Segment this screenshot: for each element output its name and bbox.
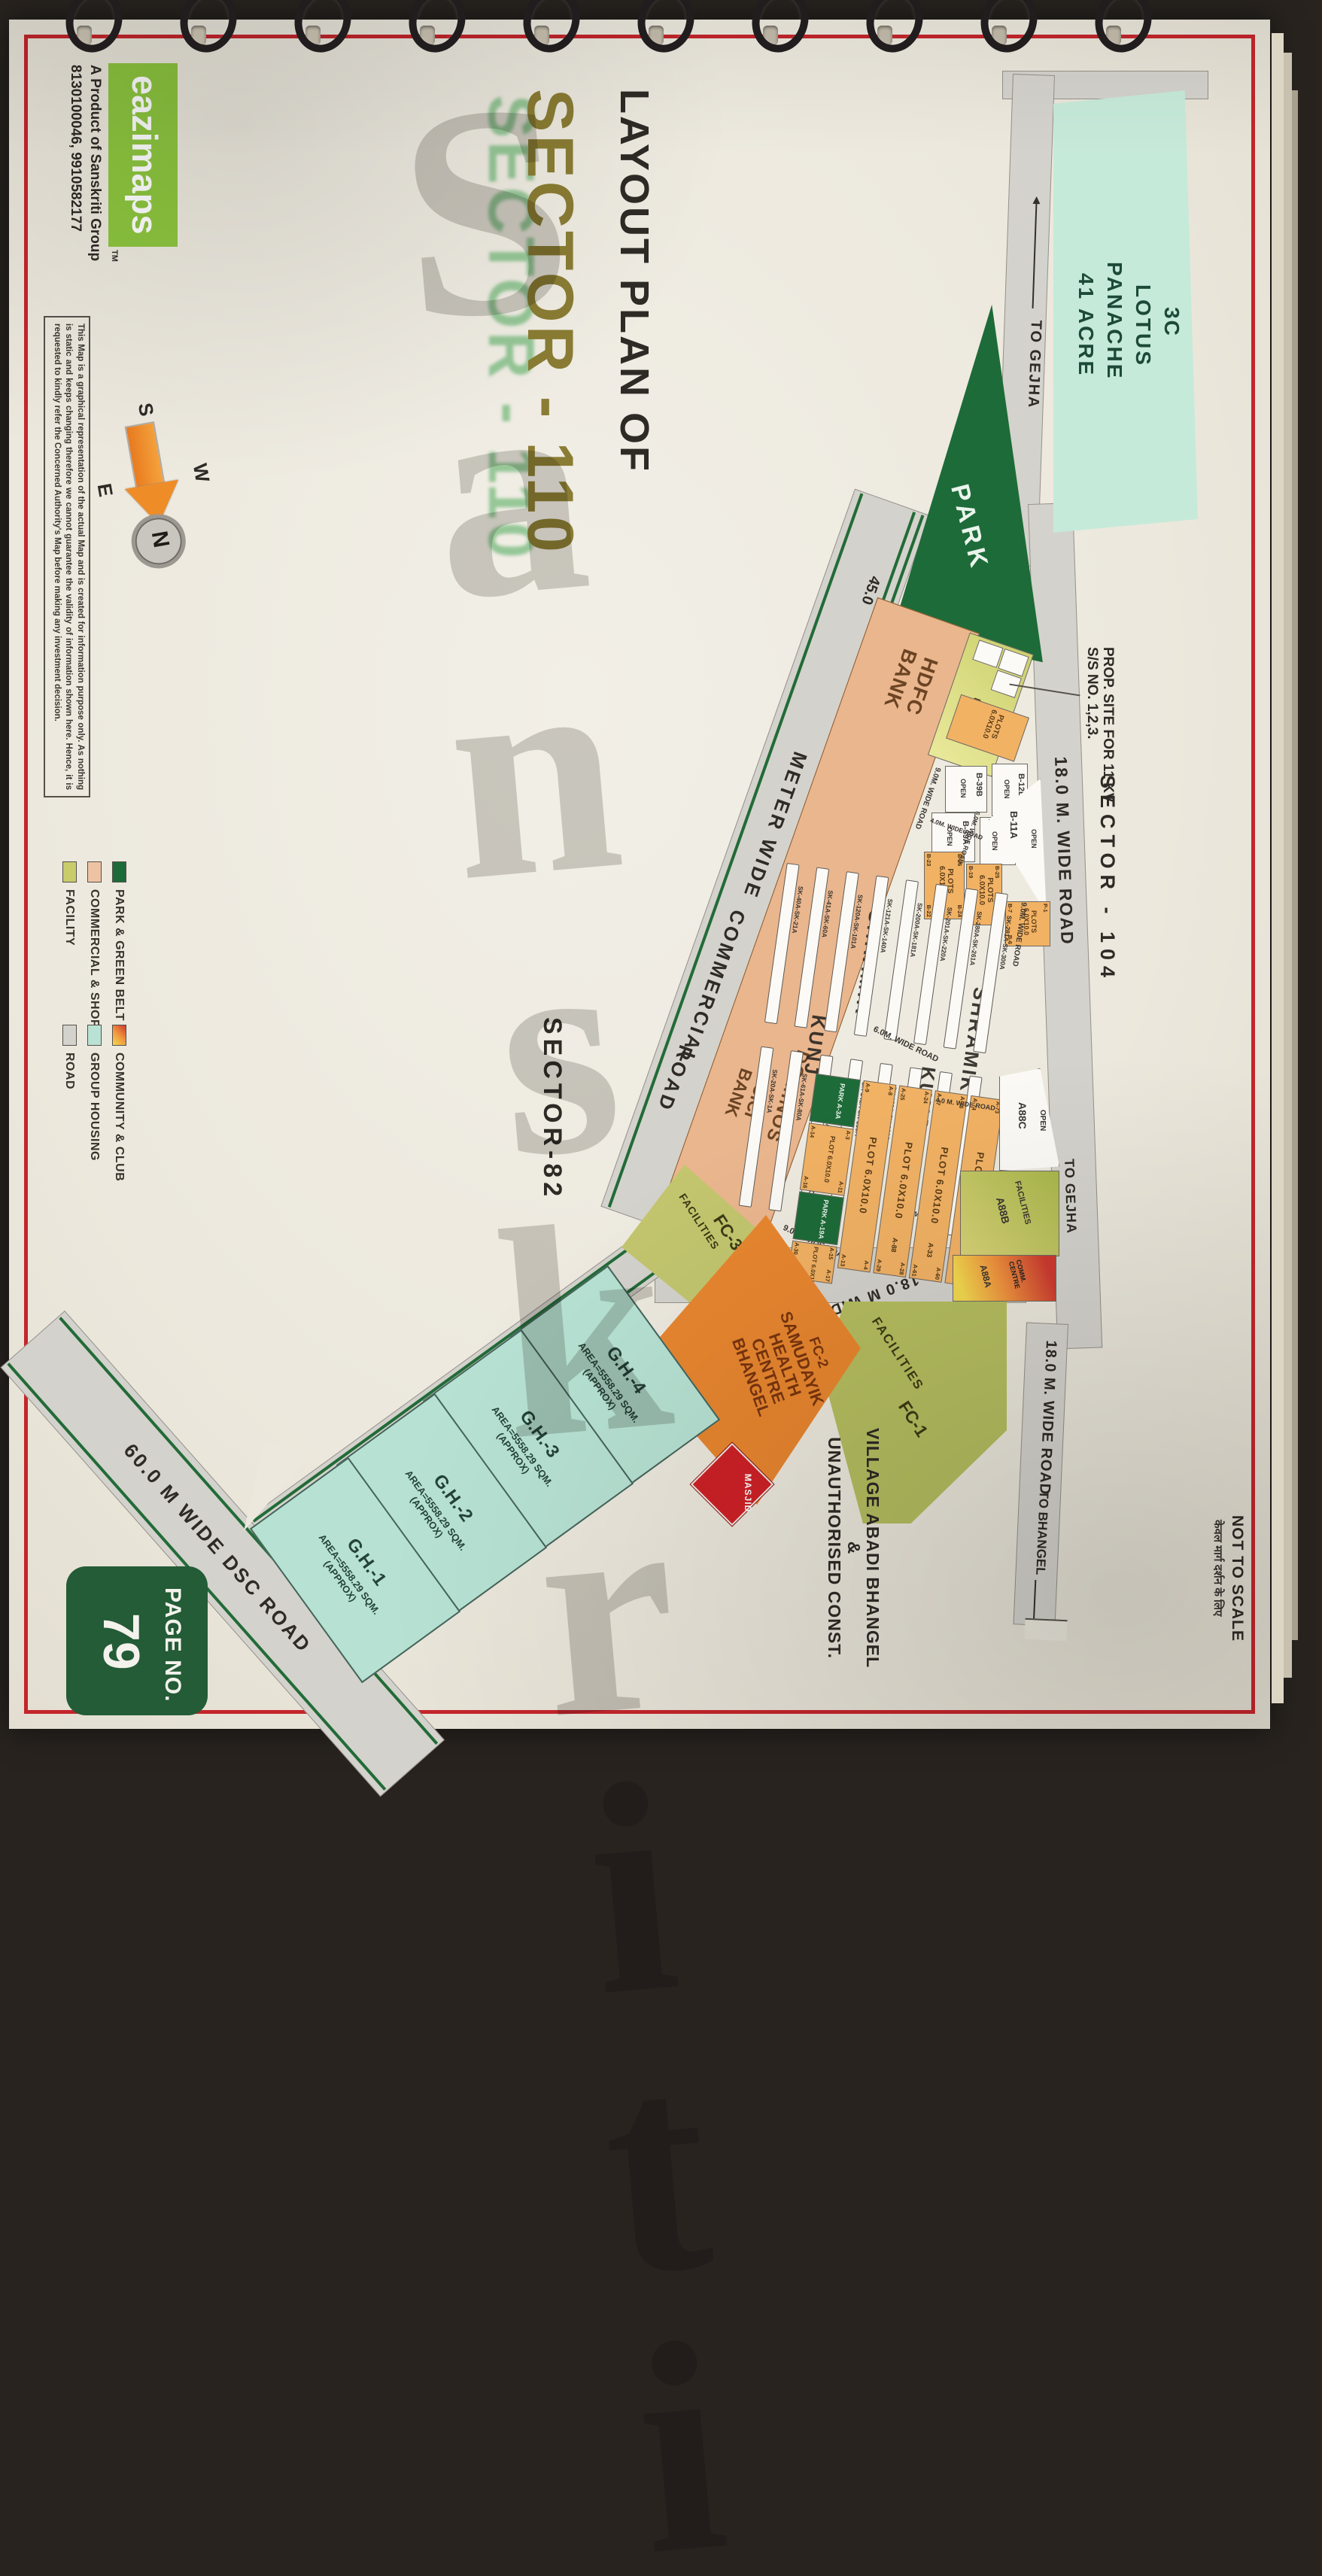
a-plot-small-center: PLOT 6.0X10.0 <box>822 1135 837 1183</box>
corner-label: A-24 <box>922 1091 930 1104</box>
page-no-label: PAGE NO. <box>160 1587 185 1702</box>
spiral-coil-icon <box>173 0 245 59</box>
legend-label: GROUP HOUSING <box>88 1053 102 1161</box>
corner-label: A-15 <box>827 1247 835 1260</box>
plot-b39b: B-39B OPEN <box>945 766 987 813</box>
corner-label: A-9 <box>864 1083 872 1092</box>
hdfc-bank-label: HDFC BANK <box>880 646 942 719</box>
a88a-comm-centre-block: COMM. CENTRE A88A <box>953 1255 1056 1302</box>
scale-note-hindi: केवल मार्ग दर्शन के लिए <box>1211 1520 1224 1616</box>
road-break-icon <box>1024 1618 1067 1641</box>
a-plot-row-center: PLOT 6.0X10.0 <box>928 1147 950 1225</box>
corner-label: A-11 <box>837 1181 845 1194</box>
legend-item: FACILITY <box>62 861 77 1036</box>
legend-label: ROAD <box>63 1053 77 1089</box>
compass-w: W <box>189 462 213 484</box>
spiral-coil-icon <box>631 0 702 59</box>
open-label: OPEN <box>991 831 998 851</box>
corner-label: A-3 <box>844 1130 852 1140</box>
lotus-line-lotus: LOTUS <box>1131 284 1154 367</box>
corner-label: A-16 <box>801 1176 810 1189</box>
park-a3a <box>810 1074 861 1128</box>
page-stack-edge <box>1272 33 1284 1703</box>
a-plot-row-center: PLOT 6.0X10.0 <box>893 1141 915 1220</box>
arrowhead-left-icon <box>1032 196 1040 204</box>
fc1-label: FC-1 <box>895 1398 931 1441</box>
b11a-label: B-11A <box>1008 811 1020 839</box>
fc1-facilities-label: FACILITIES <box>868 1315 925 1393</box>
legend-label: FACILITY <box>63 889 77 946</box>
lotus-line-3c: 3C <box>1159 307 1183 337</box>
legend-item: PARK & GREEN BELT <box>112 861 126 1036</box>
prop-site-l1: PROP. SITE FOR 11 KV <box>1099 647 1115 803</box>
open-label: OPEN <box>959 779 967 798</box>
road-label-to-gejha-top: TO GEJHA <box>1025 320 1044 409</box>
sector-104-label: SECTOR - 104 <box>1096 775 1118 983</box>
legend-column-1: PARK & GREEN BELTCOMMERCIAL & SHOPSFACIL… <box>62 861 126 1036</box>
a-plot-row-center: PLOT 6.0X10.0 <box>857 1136 879 1214</box>
corner-label: A-28 <box>898 1262 906 1275</box>
plots-b3-l1: PLOTS <box>1030 908 1038 935</box>
village-l1: VILLAGE ABADI BHANGEL <box>863 1428 882 1668</box>
corner-label: A-8 <box>886 1086 895 1095</box>
corner-label: A-30 <box>792 1242 801 1255</box>
page-stack-edge <box>1292 90 1298 1640</box>
a88a-label: A88A <box>977 1264 993 1289</box>
spiral-coil-icon <box>745 0 816 59</box>
village-l2: UNAUTHORISED CONST. <box>825 1428 843 1668</box>
open-label: OPEN <box>1030 829 1038 849</box>
brand-phone: 8130100046, 9910582177 <box>67 65 83 232</box>
prop-site-label: PROP. SITE FOR 11 KV S/S NO. 1,2,3. <box>1083 647 1115 803</box>
prop-site-l2: S/S NO. 1,2,3. <box>1083 647 1099 803</box>
compass-n: N <box>147 529 174 549</box>
village-amp: & <box>843 1428 862 1668</box>
corner-label: A-14 <box>809 1125 817 1138</box>
logo-tm: TM <box>110 250 119 262</box>
a-plot-small: A-3A-14A-11A-16PLOT 6.0X10.0 <box>800 1122 854 1195</box>
legend-label: COMMUNITY & CLUB <box>113 1053 126 1181</box>
corner-label: A-13 <box>839 1254 847 1267</box>
a88b-facilities-label: FACILITIES <box>1013 1180 1032 1225</box>
page-no-number: 79 <box>93 1613 149 1670</box>
spiral-coil-icon <box>402 0 473 59</box>
legend-item: COMMUNITY & CLUB <box>112 1025 126 1181</box>
corner-label: A-17 <box>824 1269 832 1282</box>
corner-label: A-33 <box>925 1242 935 1258</box>
b39b-label: B-39B <box>974 773 983 797</box>
a88c-label: A88C <box>1017 1102 1029 1129</box>
disclaimer-box: This Map is a graphical representation o… <box>44 316 90 797</box>
lotus-line-panache: PANACHE <box>1102 262 1126 380</box>
legend-swatch <box>87 1025 102 1046</box>
a88a-comm-label: COMM. CENTRE <box>1007 1259 1029 1290</box>
corner-label: A-61 <box>910 1264 919 1277</box>
legend-swatch <box>62 1025 77 1046</box>
legend-label: PARK & GREEN BELT <box>113 889 126 1021</box>
legend-item: COMMERCIAL & SHOPS <box>87 861 102 1036</box>
corner-label: A-4 <box>862 1260 871 1270</box>
legend-swatch <box>62 861 77 882</box>
spiral-binding <box>0 0 1322 68</box>
legend-item: GROUP HOUSING <box>87 1025 102 1181</box>
map-book-page: 60.0 M WIDE DSC ROAD 3C LOTUS PANACHE 41… <box>9 20 1270 1729</box>
brand-tagline: A Product of Sanskriti Group <box>87 65 102 261</box>
legend-label: COMMERCIAL & SHOPS <box>88 889 102 1036</box>
disclaimer-text: This Map is a graphical representation o… <box>50 324 86 790</box>
plots-a-label: PLOTS 6.0X10.0 <box>980 708 1006 742</box>
a88b-label: A88B <box>994 1196 1012 1226</box>
corner-label: A-25 <box>899 1088 907 1101</box>
a88c-open-label: OPEN <box>1038 1110 1047 1131</box>
housing-strip <box>764 863 800 1024</box>
compass-e: E <box>93 481 117 498</box>
corner-label: A-60 <box>934 1267 942 1280</box>
legend-swatch <box>112 1025 126 1046</box>
spiral-coil-icon <box>859 0 931 59</box>
spiral-coil-icon <box>974 0 1045 59</box>
lotus-panache-block: 3C LOTUS PANACHE 41 ACRE <box>1053 81 1198 533</box>
spiral-coil-icon <box>516 0 588 59</box>
page-number-badge: PAGE NO. 79 <box>66 1566 208 1715</box>
legend-item: ROAD <box>62 1025 77 1181</box>
a88b-facilities-block: FACILITIES A88B <box>960 1171 1059 1256</box>
compass-s: S <box>134 401 157 418</box>
page-stack-edge <box>1284 53 1292 1678</box>
eazimaps-logo: eazimaps <box>108 63 178 247</box>
spiral-coil-icon <box>1088 0 1159 59</box>
corner-label: A-88 <box>889 1238 899 1253</box>
housing-strip <box>739 1046 774 1207</box>
spiral-coil-icon <box>59 0 130 59</box>
not-to-scale-label: NOT TO SCALE <box>1229 1515 1246 1642</box>
corner-label: P-1 <box>1042 904 1049 913</box>
village-abadi-label: VILLAGE ABADI BHANGEL & UNAUTHORISED CON… <box>825 1428 882 1668</box>
corner-label: B-23 <box>925 854 932 866</box>
compass: S W E N <box>73 390 229 583</box>
legend-column-2: COMMUNITY & CLUBGROUP HOUSINGROAD <box>62 1025 126 1181</box>
legend-swatch <box>112 861 126 882</box>
corner-label: B-25 <box>994 866 1001 878</box>
road-label-to-gejha-right: TO GEJHA <box>1061 1159 1078 1234</box>
lotus-line-acre: 41 ACRE <box>1074 273 1097 377</box>
road-label-to-bhangel: TO BHANGEL <box>1032 1490 1050 1575</box>
legend-swatch <box>87 861 102 882</box>
open-label: OPEN <box>1003 779 1010 799</box>
corner-label: B-19 <box>968 866 974 878</box>
eazimaps-logo-text: eazimaps <box>125 75 164 235</box>
spiral-coil-icon <box>287 0 359 59</box>
corner-label: A-29 <box>875 1259 883 1271</box>
